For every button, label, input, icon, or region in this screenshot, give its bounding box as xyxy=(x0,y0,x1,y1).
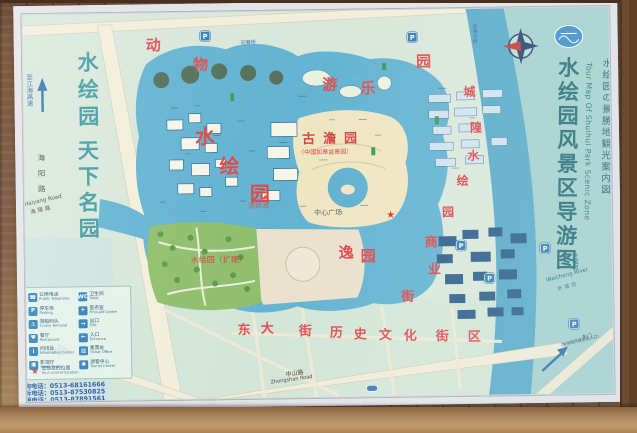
expansion-area-label: 水绘园（扩建） xyxy=(191,256,247,265)
zhongshan-road-label-en: Zhongshan Road xyxy=(270,375,312,386)
entrance-icon: ← xyxy=(79,333,88,342)
legend-item: WC卫生间Toilet xyxy=(78,290,117,304)
contact-phone-numbers: 咨询电话：0513-68161666投诉电话：0513-87530825救援电话… xyxy=(18,381,105,405)
legend-item: i问讯处Information Center xyxy=(29,344,74,358)
legend-label-en: Entrance xyxy=(90,338,106,342)
amusement-zone-label: 乐 xyxy=(360,81,375,96)
legend-item: +医务室First-aid Center xyxy=(78,303,117,317)
haiyang-road-label-jp: 海陽路 xyxy=(30,206,53,216)
legend-label-en: Restaurant xyxy=(40,338,60,342)
legend-label-en: Parking xyxy=(39,312,53,316)
current-location-label-en: Your current location xyxy=(41,372,78,376)
legend-item: ⚓游船码头Cruise Terminal xyxy=(29,317,74,331)
public-telephone-icon: ☎ xyxy=(28,293,37,302)
exit-icon: → xyxy=(79,319,88,328)
amusement-zone-label: 物 xyxy=(193,58,208,73)
legend-item: Ψ餐厅Restaurant xyxy=(29,331,74,345)
dongdajie-historic-district-label: 东 xyxy=(238,324,251,337)
legend-item: ▤售票处Ticket Office xyxy=(79,344,118,358)
chenghuang-label: 城 xyxy=(463,86,475,98)
parking-marker-icon: P xyxy=(541,244,550,253)
legend-column-right: WC卫生间Toilet+医务室First-aid Center→出口Exit←入… xyxy=(78,290,118,372)
legend-column-left: ☎公用电话Public TelephoneP停车场Parking⚓游船码头Cru… xyxy=(28,290,74,372)
park-slogan-line1: 水绘园 xyxy=(76,51,98,132)
wood-plank-right xyxy=(620,0,637,433)
commercial-street-label: 商 xyxy=(424,236,437,249)
parking-marker-icon: P xyxy=(408,33,417,42)
dongdajie-historic-district-label: 街 xyxy=(299,325,312,338)
shuihui-east-label: 绘 xyxy=(457,175,469,187)
legend-item: →出口Exit xyxy=(79,317,118,331)
parking-icon: P xyxy=(28,307,37,316)
dongdajie-historic-district-label: 史 xyxy=(354,328,367,341)
wood-beam-top xyxy=(0,0,637,3)
legend-label-en: Tourist Center xyxy=(90,365,115,369)
shuihui-garden-label: 绘 xyxy=(219,156,239,176)
park-slogan-line2: 天下名园 xyxy=(76,139,98,243)
ticket-office-icon: ▤ xyxy=(79,346,88,355)
parking-marker-icon: P xyxy=(457,241,466,250)
gudan-garden-label: 古澹园 xyxy=(302,132,365,146)
legend-label-en: Public Telephone xyxy=(39,298,69,302)
legend-item: P停车场Parking xyxy=(28,304,73,318)
waicheng-river-label-cn: 外城河 xyxy=(557,282,579,292)
map-board: 水绘园风景区导游图 Tour Map Of Shuihui Park Sceni… xyxy=(13,0,623,410)
current-location-row: ★ 您现在的位置 Your current location xyxy=(31,367,78,376)
cruise-terminal-icon: ⚓ xyxy=(29,320,38,329)
commercial-street-label: 街 xyxy=(401,291,414,304)
legend-label-en: Ticket Office xyxy=(90,351,112,355)
parking-marker-icon: P xyxy=(485,274,494,283)
dongdajie-historic-district-label: 文 xyxy=(379,329,392,342)
waicheng-river-label-v: 外城河 xyxy=(571,252,577,270)
amusement-zone-label: 园 xyxy=(416,54,431,69)
dongdajie-historic-district-label: 大 xyxy=(261,323,274,336)
current-location-star-icon: ★ xyxy=(31,368,38,376)
parking-marker-icon: P xyxy=(201,31,210,40)
wood-beam-bottom xyxy=(0,407,637,433)
toilet-icon: WC xyxy=(78,292,87,301)
visitor-center-icon: ◉ xyxy=(79,360,88,369)
legend-label-en: Information Center xyxy=(40,352,74,356)
shuihui-garden-label: 园 xyxy=(250,184,270,204)
current-location-marker: ★ xyxy=(386,211,395,221)
commercial-street-label: 业 xyxy=(428,263,441,276)
east-gate-sublabel: （水绘园风景区出入口） xyxy=(558,334,602,348)
yi-garden-label: 逸 xyxy=(339,246,354,261)
dongdajie-historic-district-label: 区 xyxy=(468,331,481,344)
legend-label-en: First-aid Center xyxy=(89,311,117,315)
legend-item: ←入口Entrance xyxy=(79,330,118,344)
legend-label-en: Exit xyxy=(90,324,100,328)
legend-item: ☎公用电话Public Telephone xyxy=(28,290,73,304)
yi-garden-label: 园 xyxy=(361,249,376,264)
shuihui-garden-label: 水 xyxy=(195,126,215,146)
waicheng-river-label-en: Waicheng River xyxy=(546,268,589,284)
central-plaza-label: 中心广场 xyxy=(314,210,342,217)
first-aid-icon: + xyxy=(78,306,87,315)
legend-item: ◉游客中心Tourist Center xyxy=(79,357,118,371)
parking-marker-icon: P xyxy=(570,319,579,328)
dongdajie-historic-district-label: 历 xyxy=(330,327,343,340)
to-expressway-label: 至江海高速 xyxy=(25,74,32,107)
legend-label-en: Toilet xyxy=(89,297,103,301)
dongdajie-historic-district-label: 街 xyxy=(436,330,449,343)
photo-of-map-board: 水绘园风景区导游图 Tour Map Of Shuihui Park Sceni… xyxy=(0,0,637,433)
amusement-zone-label: 游 xyxy=(322,78,337,93)
yingchun-bridge-label: 迎春桥 xyxy=(241,41,256,46)
yingchun-grand-bridge-label: 迎春大桥 xyxy=(471,24,476,44)
legend-label-en: Cruise Terminal xyxy=(40,325,68,329)
shuihui-east-label: 水 xyxy=(467,150,479,162)
legend-panel: ☎公用电话Public TelephoneP停车场Parking⚓游船码头Cru… xyxy=(23,286,132,380)
haiyang-road-label-cn: 海阳路 xyxy=(37,154,45,201)
chenghuang-label: 隍 xyxy=(470,122,482,134)
restaurant-icon: Ψ xyxy=(29,334,38,343)
shuihui-east-label: 园 xyxy=(442,206,454,218)
gudan-garden-sublabel: （中国如皋盆景园） xyxy=(298,150,352,157)
information-icon: i xyxy=(29,347,38,356)
dongdajie-historic-district-label: 化 xyxy=(404,330,417,343)
amusement-zone-label: 动 xyxy=(146,38,161,53)
